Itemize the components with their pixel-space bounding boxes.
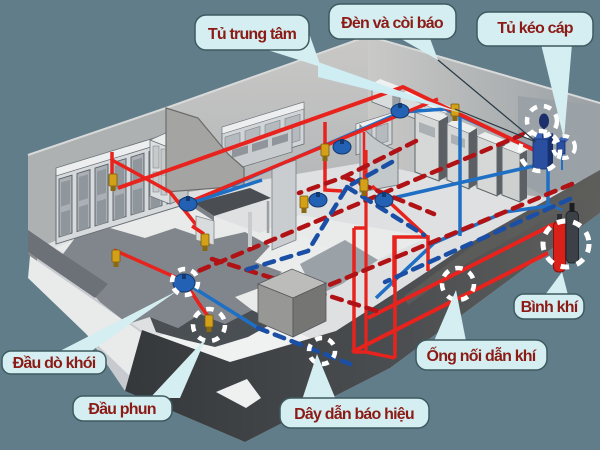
svg-text:Bình khí: Bình khí [521, 299, 579, 316]
svg-text:Ống nối dẫn khí: Ống nối dẫn khí [427, 345, 537, 365]
svg-text:Đầu phun: Đầu phun [88, 401, 155, 418]
svg-text:Đầu dò khói: Đầu dò khói [13, 355, 96, 372]
svg-text:Dây dẫn báo hiệu: Dây dẫn báo hiệu [294, 404, 414, 423]
svg-text:Tủ trung tâm: Tủ trung tâm [208, 26, 297, 43]
svg-text:Đèn và còi báo: Đèn và còi báo [341, 15, 444, 32]
svg-text:Tủ kéo cáp: Tủ kéo cáp [497, 20, 574, 37]
